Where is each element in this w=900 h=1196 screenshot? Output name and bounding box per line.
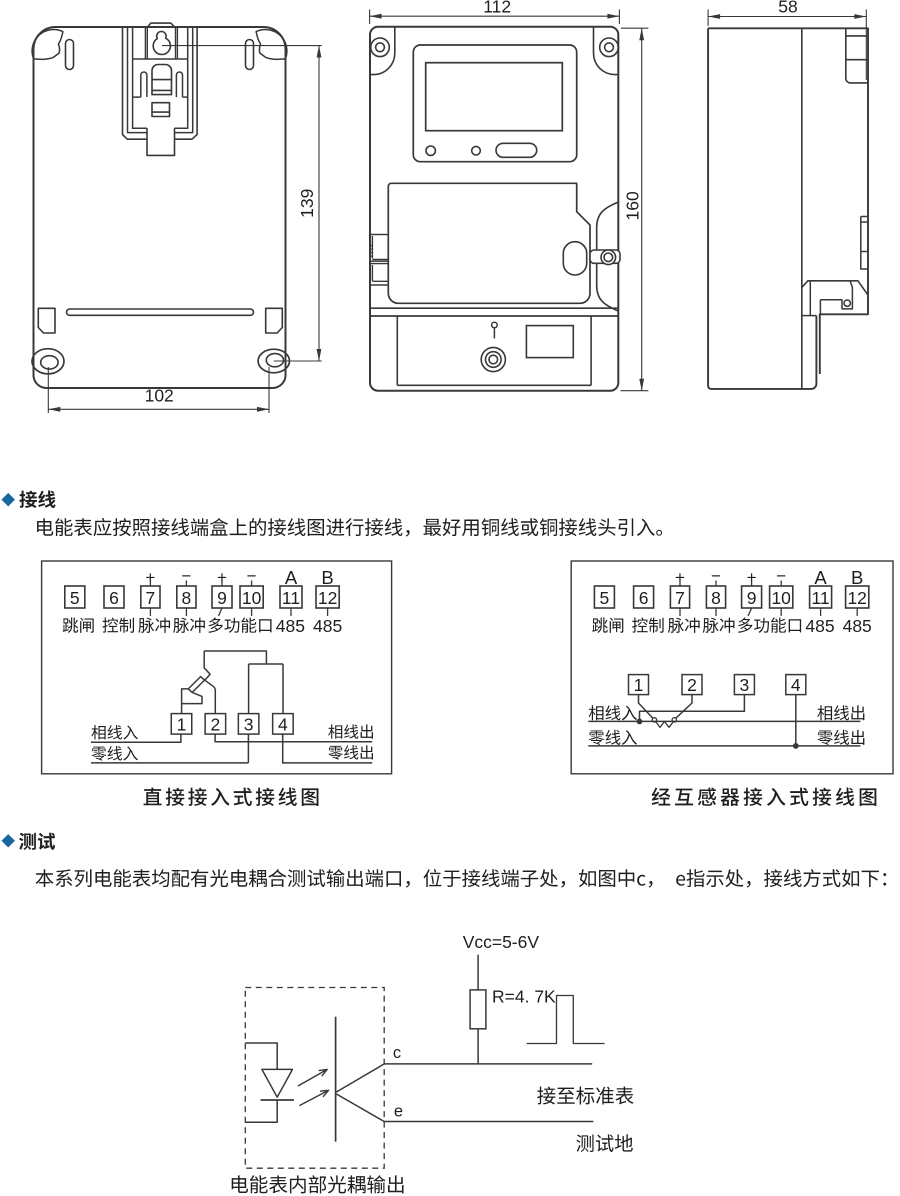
svg-text:+: +: [675, 568, 685, 587]
svg-text:12: 12: [847, 588, 866, 608]
svg-text:11: 11: [812, 588, 830, 608]
svg-text:8: 8: [711, 588, 721, 608]
svg-text:8: 8: [182, 588, 192, 608]
svg-text:+: +: [145, 568, 155, 587]
svg-text:6: 6: [109, 588, 119, 608]
svg-text:12: 12: [318, 588, 337, 608]
svg-text:139: 139: [297, 189, 317, 218]
svg-text:58: 58: [778, 0, 797, 17]
svg-text:−: −: [181, 567, 191, 586]
svg-text:B: B: [851, 567, 863, 588]
svg-text:2: 2: [211, 715, 221, 735]
svg-text:1: 1: [634, 675, 644, 695]
svg-text:112: 112: [483, 0, 511, 17]
svg-text:7: 7: [146, 588, 156, 608]
svg-text:−: −: [711, 567, 721, 586]
svg-text:9: 9: [747, 588, 757, 608]
svg-text:c: c: [393, 1044, 401, 1062]
svg-text:5: 5: [70, 588, 80, 608]
svg-text:Vcc=5-6V: Vcc=5-6V: [463, 932, 540, 952]
svg-text:4: 4: [791, 675, 801, 695]
svg-text:+: +: [747, 568, 757, 587]
svg-text:+: +: [217, 568, 227, 587]
svg-text:7: 7: [675, 588, 685, 608]
svg-text:A: A: [285, 567, 298, 588]
svg-text:11: 11: [282, 588, 300, 608]
svg-text:e: e: [394, 1103, 403, 1121]
svg-text:−: −: [776, 567, 786, 586]
svg-text:10: 10: [242, 588, 262, 608]
svg-text:4: 4: [278, 715, 288, 735]
svg-text:102: 102: [145, 386, 174, 406]
svg-text:485: 485: [843, 616, 872, 636]
svg-text:3: 3: [244, 715, 254, 735]
svg-text:3: 3: [740, 675, 750, 695]
svg-text:485: 485: [276, 616, 305, 636]
svg-text:−: −: [247, 567, 257, 586]
svg-text:R=4. 7K: R=4. 7K: [492, 987, 556, 1007]
svg-text:B: B: [321, 567, 333, 588]
svg-text:A: A: [814, 567, 827, 588]
svg-text:485: 485: [805, 616, 834, 636]
svg-text:160: 160: [623, 191, 643, 220]
svg-text:485: 485: [313, 616, 342, 636]
svg-text:9: 9: [217, 588, 227, 608]
svg-text:2: 2: [687, 675, 697, 695]
svg-text:1: 1: [177, 715, 187, 735]
svg-text:10: 10: [771, 588, 791, 608]
svg-text:5: 5: [600, 588, 610, 608]
svg-text:6: 6: [639, 588, 649, 608]
